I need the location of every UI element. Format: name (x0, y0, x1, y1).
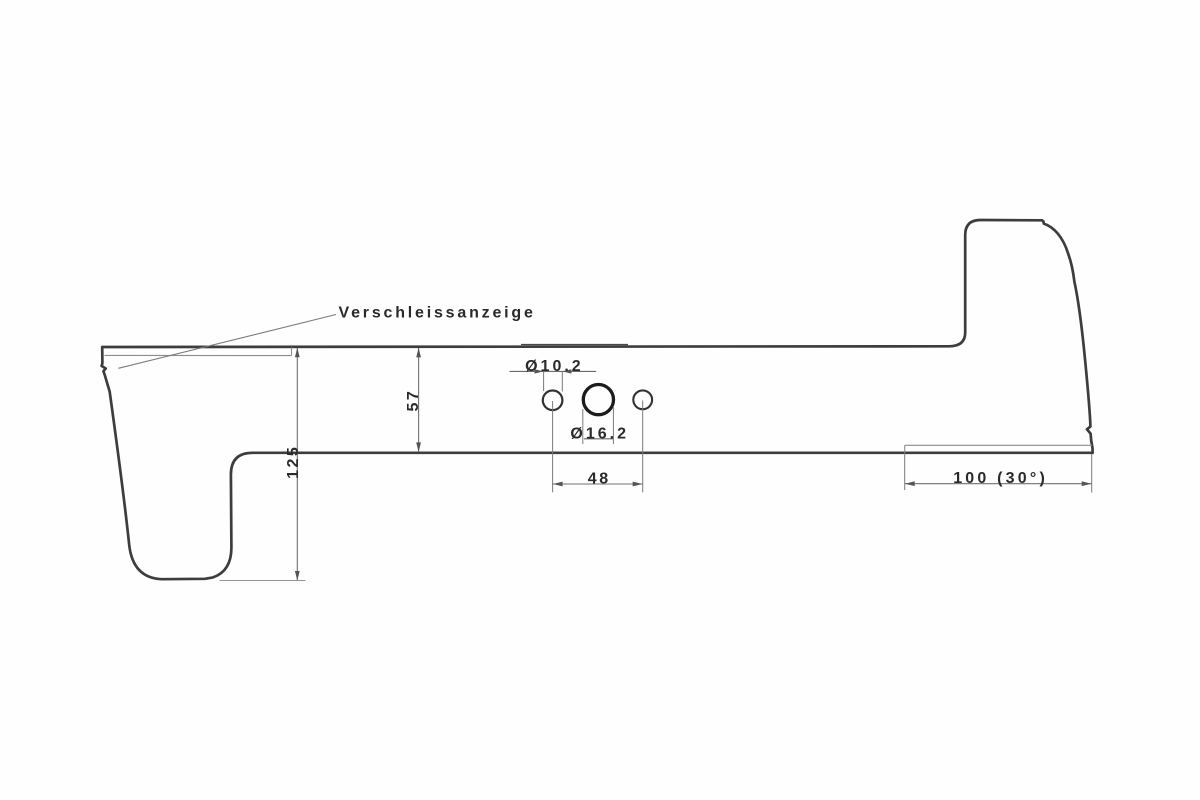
svg-text:48: 48 (588, 470, 611, 487)
svg-text:100 (30°): 100 (30°) (953, 470, 1048, 487)
svg-text:Verschleissanzeige: Verschleissanzeige (339, 305, 536, 322)
svg-text:57: 57 (405, 389, 422, 412)
svg-text:Ø16.2: Ø16.2 (570, 425, 629, 442)
svg-text:125: 125 (285, 445, 302, 479)
svg-text:Ø10.2: Ø10.2 (525, 358, 584, 375)
